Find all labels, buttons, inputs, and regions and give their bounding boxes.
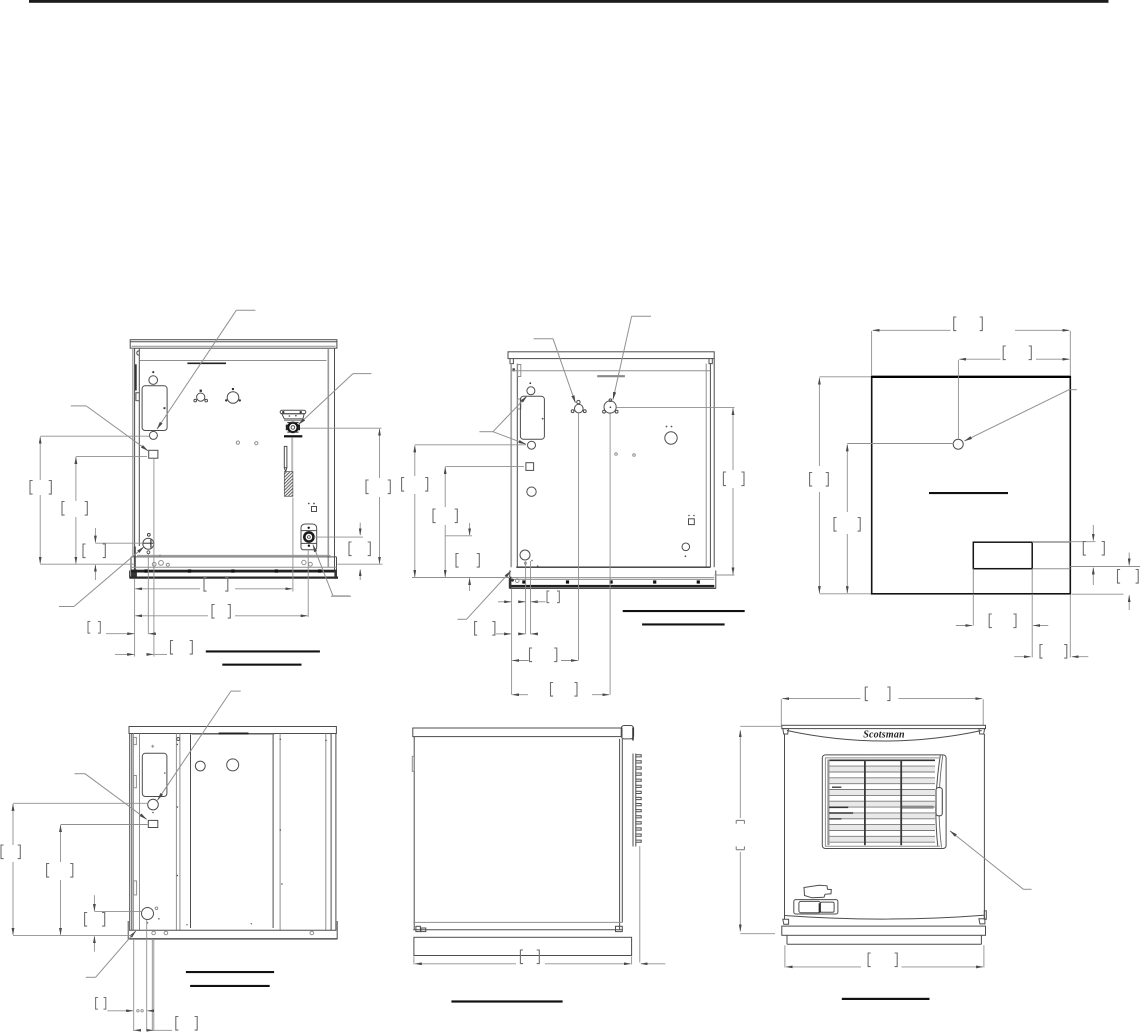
svg-text:Scotsman: Scotsman (863, 730, 905, 741)
